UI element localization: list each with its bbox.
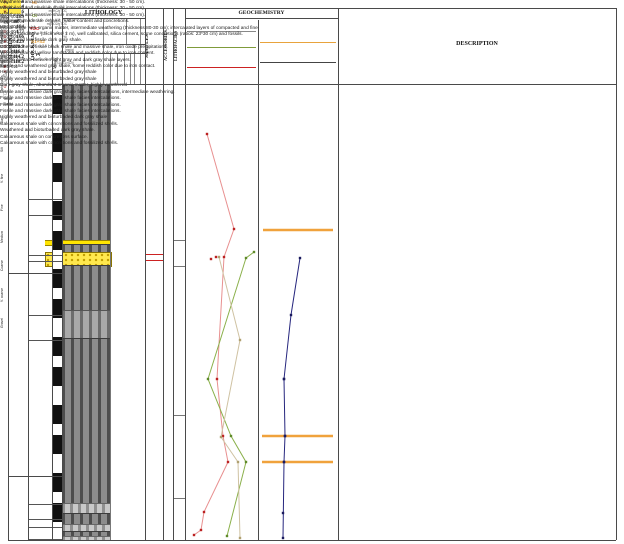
grid-vline: [52, 8, 53, 540]
grid-vline: [145, 8, 146, 540]
grid-vline-geochem-divider: [258, 20, 259, 540]
grid-hline: [185, 18, 338, 19]
table-grid-lines: [0, 0, 624, 544]
grid-vline-litho-right: [110, 84, 111, 540]
grid-vline: [185, 8, 186, 540]
grid-hline: [8, 84, 616, 85]
grid-hline: [8, 8, 616, 9]
grid-vline: [62, 8, 63, 540]
strat-log-figure: SEGMENT THICKNESS Meters LITHOLOGY SAMPL…: [0, 0, 624, 544]
grid-vline: [173, 8, 174, 540]
grid-vline: [163, 8, 164, 540]
segment-boundary-line: [8, 273, 62, 274]
grid-hline: [8, 540, 616, 541]
grid-vline: [8, 8, 9, 540]
segment-boundary-line: [8, 476, 62, 477]
grid-vline: [338, 8, 339, 540]
grid-hline: [62, 18, 145, 19]
grid-hline: [62, 44, 145, 45]
grid-hline: [62, 53, 145, 54]
grid-vline: [616, 8, 617, 540]
grid-vline: [28, 8, 29, 540]
